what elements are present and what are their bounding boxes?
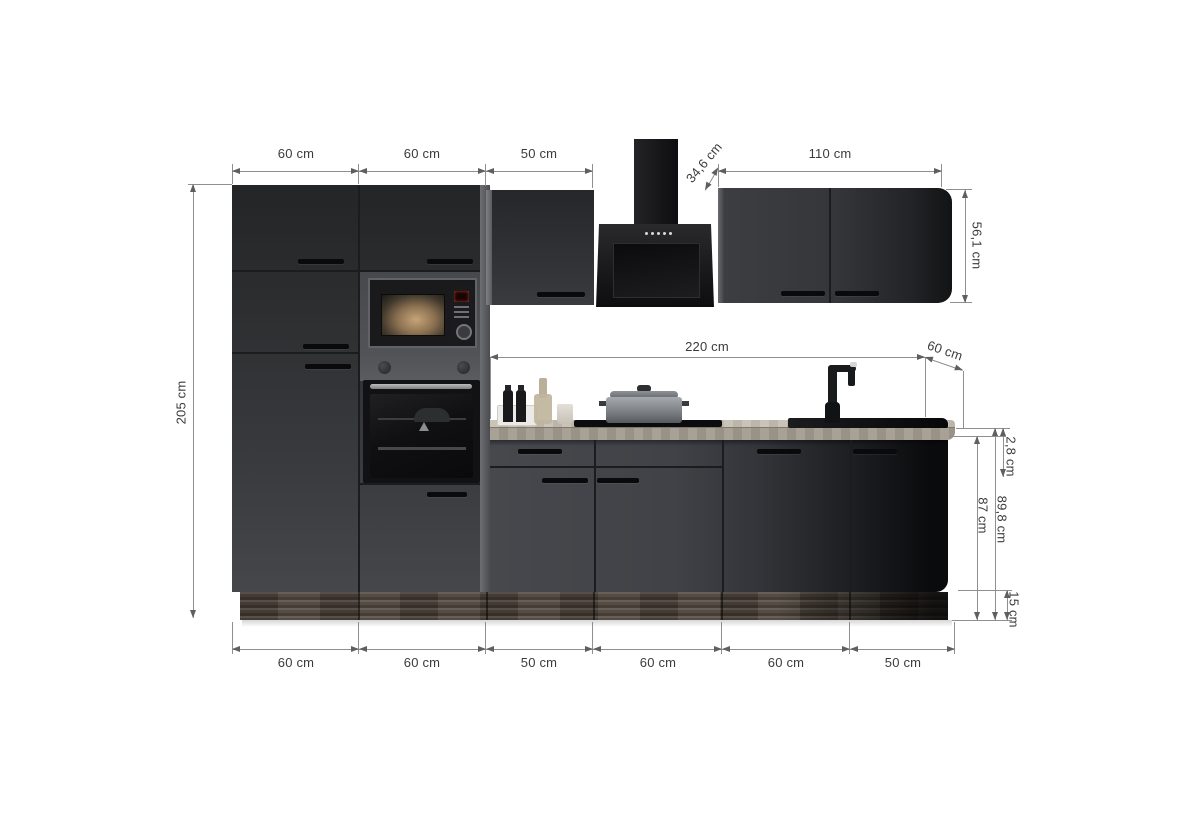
- oven-handle-bar: [370, 384, 472, 389]
- hood-chimney: [634, 139, 678, 225]
- dim-arrow: [934, 168, 942, 174]
- base-drawer-handle: [518, 449, 562, 454]
- bottle: [503, 390, 513, 422]
- faucet-spout: [848, 370, 855, 386]
- bottle-cap: [518, 385, 524, 391]
- dim-arrow: [974, 436, 980, 444]
- dimension-line: [965, 190, 966, 303]
- dimension-extension: [232, 164, 233, 184]
- plinth-gap: [593, 592, 595, 620]
- dim-label-worktop-length: 220 cm: [677, 339, 737, 354]
- cup: [557, 404, 573, 424]
- base-cabinet-run: [490, 440, 948, 592]
- oven-knob: [457, 361, 470, 374]
- dim-label-bottom-width-5: 60 cm: [756, 655, 816, 670]
- dim-label-worktop-depth: 60 cm: [914, 334, 976, 368]
- base-cabinet-divider: [850, 440, 852, 592]
- dimension-line: [193, 184, 194, 618]
- tall-door-handle: [298, 259, 344, 264]
- dimension-line: [232, 171, 593, 172]
- pot-handle: [681, 401, 689, 406]
- dim-arrow: [486, 646, 494, 652]
- worktop-front-edge: [490, 428, 955, 440]
- dimension-line-diagonal: [705, 167, 719, 190]
- tall-door-handle: [427, 259, 473, 264]
- dim-label-top-width-3: 50 cm: [509, 146, 569, 161]
- dim-arrow: [478, 168, 486, 174]
- microwave-buttons: [454, 311, 469, 313]
- dim-arrow: [359, 168, 367, 174]
- tall-door-handle: [305, 364, 351, 369]
- dim-arrow: [842, 646, 850, 652]
- kitchen-dimension-diagram: 60 cm 60 cm 50 cm 34,6 cm 110 cm 56,1 cm…: [0, 0, 1200, 818]
- dim-arrow: [190, 184, 196, 192]
- base-door-handle: [597, 478, 639, 483]
- bottle: [516, 390, 526, 422]
- dim-arrow: [850, 646, 858, 652]
- tall-door-handle: [303, 344, 349, 349]
- plinth-gap: [486, 592, 488, 620]
- dim-label-base-height: 87 cm: [976, 486, 991, 546]
- bottle-cap: [505, 385, 511, 391]
- tall-door-line: [232, 270, 480, 272]
- plinth-gap: [849, 592, 851, 620]
- microwave-buttons: [454, 316, 469, 318]
- dim-arrow: [190, 610, 196, 618]
- dimension-extension: [950, 302, 972, 303]
- cooking-pot: [606, 397, 682, 423]
- dim-label-bottom-width-6: 50 cm: [873, 655, 933, 670]
- base-cabinet-divider: [594, 440, 596, 592]
- dim-arrow: [359, 646, 367, 652]
- dimension-extension: [952, 620, 1012, 621]
- dimension-extension: [358, 164, 359, 184]
- microwave-buttons: [454, 306, 469, 308]
- wall-cabinet-110-side: [718, 188, 724, 303]
- dim-arrow: [974, 612, 980, 620]
- base-drawer-line: [490, 466, 722, 468]
- oven-glass: [370, 394, 473, 478]
- dim-arrow: [593, 646, 601, 652]
- dimension-line: [718, 171, 942, 172]
- dim-arrow: [478, 646, 486, 652]
- dim-arrow: [585, 168, 593, 174]
- dim-label-plinth-height: 15 cm: [1007, 580, 1022, 640]
- dim-arrow: [486, 168, 494, 174]
- dim-arrow: [702, 182, 711, 192]
- dim-label-worktop-thickness: 2,8 cm: [1004, 427, 1019, 487]
- dim-arrow: [714, 646, 722, 652]
- microwave-window: [381, 294, 445, 336]
- dim-label-bottom-width-1: 60 cm: [266, 655, 326, 670]
- wall-cabinet-110-handle: [781, 291, 825, 296]
- hood-buttons: [645, 232, 648, 235]
- dim-arrow: [351, 646, 359, 652]
- sink: [788, 418, 948, 428]
- dimension-extension: [490, 357, 491, 419]
- dim-label-bottom-width-3: 50 cm: [509, 655, 569, 670]
- oven-knob: [378, 361, 391, 374]
- wall-cabinet-110: [718, 188, 952, 303]
- dim-arrow: [962, 295, 968, 303]
- dim-arrow: [718, 168, 726, 174]
- dim-label-base-total-height: 89,8 cm: [995, 490, 1010, 550]
- dim-label-bottom-width-4: 60 cm: [628, 655, 688, 670]
- oven-logo-triangle: [419, 422, 429, 431]
- base-door-handle: [853, 449, 897, 454]
- oven-pot-reflection: [414, 408, 450, 422]
- dim-arrow: [962, 190, 968, 198]
- dimension-extension: [963, 371, 964, 429]
- oven-shelf-reflection: [378, 447, 466, 450]
- worktop-shadow: [490, 440, 948, 446]
- dim-label-top-width-1: 60 cm: [266, 146, 326, 161]
- tall-cabinet-divider: [358, 185, 360, 592]
- floor-shadow: [242, 620, 952, 627]
- dim-label-wall-width: 110 cm: [800, 146, 860, 161]
- dim-arrow: [585, 646, 593, 652]
- dimension-extension: [925, 357, 926, 417]
- dim-arrow: [917, 354, 925, 360]
- dim-label-hood-depth: 34,6 cm: [679, 135, 729, 191]
- tall-door-line: [232, 352, 359, 354]
- dim-arrow: [490, 354, 498, 360]
- wall-cabinet-50: [492, 190, 594, 305]
- dim-label-total-height: 205 cm: [174, 373, 189, 433]
- dim-arrow: [992, 428, 998, 436]
- base-door-handle: [542, 478, 588, 483]
- dim-arrow: [722, 646, 730, 652]
- faucet-base: [825, 402, 840, 423]
- plinth-gap: [358, 592, 360, 620]
- tall-drawer-line: [359, 483, 480, 485]
- microwave-dial: [456, 324, 472, 340]
- hood-glass-panel: [613, 243, 700, 298]
- dim-arrow: [947, 646, 955, 652]
- dim-label-wall-height: 56,1 cm: [970, 216, 985, 276]
- tall-drawer-handle: [427, 492, 467, 497]
- dimension-line: [490, 357, 925, 358]
- carafe: [534, 394, 552, 424]
- base-door-handle: [757, 449, 801, 454]
- dim-arrow: [232, 168, 240, 174]
- wall-cabinet-50-handle: [537, 292, 585, 297]
- dimension-extension: [946, 189, 972, 190]
- dim-arrow: [351, 168, 359, 174]
- dim-arrow: [232, 646, 240, 652]
- dim-label-top-width-2: 60 cm: [392, 146, 452, 161]
- dim-label-bottom-width-2: 60 cm: [392, 655, 452, 670]
- wall-cabinet-110-handle: [835, 291, 879, 296]
- plinth-gap: [721, 592, 723, 620]
- base-cabinet-divider: [722, 440, 724, 592]
- microwave-display: [454, 291, 469, 302]
- wall-cabinet-110-divider: [829, 188, 831, 303]
- dim-arrow: [992, 612, 998, 620]
- faucet-tip-cap: [850, 362, 857, 367]
